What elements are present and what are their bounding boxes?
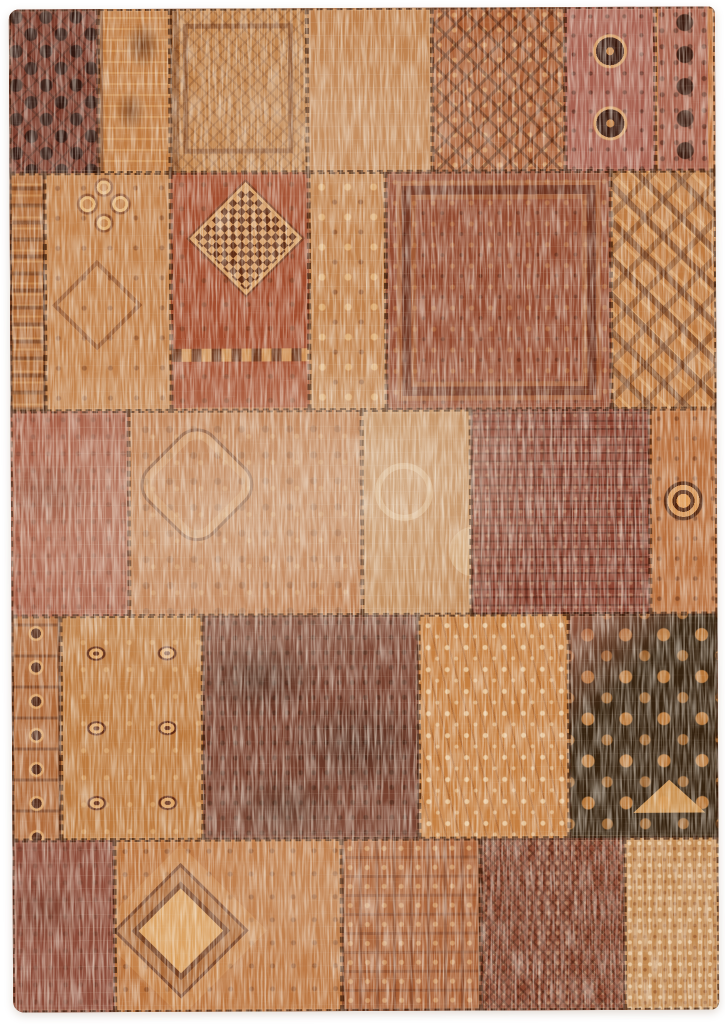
- page: { "meta": { "description": "Product phot…: [0, 0, 725, 1024]
- wear-overlay: [361, 410, 471, 615]
- rug-patch-r4c1: [11, 616, 61, 840]
- rug-patch-r3c2: [129, 410, 362, 616]
- wear-overlay: [650, 408, 718, 613]
- rug-patch-r5c2: [114, 839, 342, 1012]
- rug-patch-r5c1: [12, 840, 114, 1013]
- wear-overlay: [203, 615, 420, 840]
- rug-patch-r3c1: [11, 411, 130, 617]
- wear-overlay: [12, 840, 114, 1013]
- rug-patch-r5c4: [480, 838, 625, 1011]
- rug-patch-r4c2: [60, 616, 203, 840]
- wear-overlay: [306, 8, 432, 173]
- rug-patch-r4c3: [203, 615, 420, 840]
- wear-overlay: [386, 171, 612, 410]
- rug-patch-r1c5: [432, 7, 565, 172]
- wear-overlay: [44, 173, 171, 411]
- rug-patch-r2c6: [611, 171, 717, 409]
- rug-patch-r3c5: [650, 408, 718, 613]
- rug-patch-r2c5: [386, 171, 612, 410]
- rug-patch-r5c3: [341, 838, 481, 1011]
- wear-overlay: [114, 839, 342, 1012]
- rug-patch-r2c1: [10, 174, 46, 412]
- rug-patch-r1c7: [655, 6, 716, 170]
- wear-overlay: [11, 411, 130, 617]
- rug-patch-r4c4: [419, 614, 569, 839]
- rug-patch-r2c2: [44, 173, 171, 411]
- wear-overlay: [341, 838, 481, 1011]
- rug-patch-r1c1: [9, 9, 98, 174]
- rug-patch-r1c4: [306, 8, 432, 173]
- wear-overlay: [655, 6, 716, 170]
- wear-overlay: [9, 9, 98, 174]
- wear-overlay: [10, 174, 46, 412]
- wear-overlay: [129, 410, 362, 616]
- rug-patch-r1c2: [97, 9, 170, 174]
- rug-patch-r3c3: [361, 410, 471, 615]
- wear-overlay: [171, 172, 309, 410]
- rug-row-2: [10, 171, 717, 412]
- rug-patch-r5c5: [625, 837, 719, 1010]
- wear-overlay: [564, 7, 655, 172]
- rug-row-4: [11, 613, 718, 840]
- photo-background: [0, 0, 725, 1024]
- wear-overlay: [611, 171, 717, 409]
- rug-row-1: [9, 6, 716, 173]
- rug-patch-r4c5: [568, 613, 718, 838]
- wear-overlay: [170, 8, 307, 173]
- wear-overlay: [419, 614, 569, 839]
- rug-patch-r2c4: [308, 172, 387, 410]
- wear-overlay: [568, 613, 718, 838]
- patch-grid: [9, 6, 719, 1012]
- rug-row-5: [12, 837, 719, 1012]
- rug-patch-r1c6: [564, 7, 655, 172]
- rug-patch-r3c4: [471, 409, 651, 615]
- rug-patch-r1c3: [170, 8, 307, 173]
- wear-overlay: [11, 616, 61, 840]
- wear-overlay: [60, 616, 203, 840]
- wear-overlay: [308, 172, 387, 410]
- rug-row-3: [11, 408, 718, 616]
- wear-overlay: [625, 837, 719, 1010]
- wear-overlay: [97, 9, 170, 174]
- wear-overlay: [432, 7, 565, 172]
- rug-patch-r2c3: [171, 172, 309, 410]
- wear-overlay: [471, 409, 651, 615]
- wear-overlay: [480, 838, 625, 1011]
- patchwork-rug: [9, 6, 719, 1012]
